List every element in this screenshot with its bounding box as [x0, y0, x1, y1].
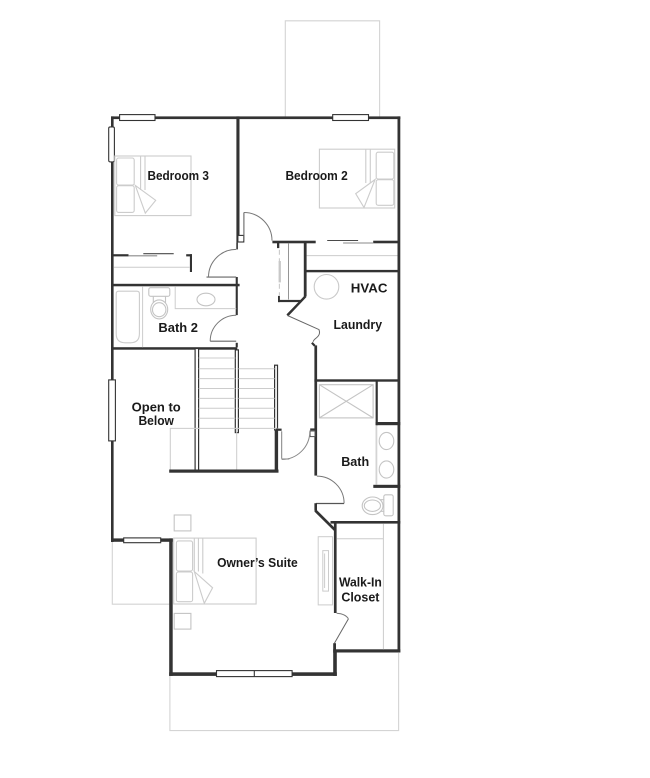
svg-text:HVAC: HVAC — [351, 280, 388, 295]
svg-text:Bath: Bath — [341, 454, 369, 469]
svg-text:Bath 2: Bath 2 — [158, 320, 198, 335]
svg-text:Bedroom 2: Bedroom 2 — [285, 168, 347, 183]
svg-text:Bedroom 3: Bedroom 3 — [147, 168, 209, 183]
svg-text:Below: Below — [138, 413, 174, 428]
svg-text:Laundry: Laundry — [334, 317, 383, 332]
svg-text:Closet: Closet — [341, 589, 380, 604]
svg-text:Walk-In: Walk-In — [339, 575, 382, 590]
svg-text:Owner’s Suite: Owner’s Suite — [217, 555, 298, 570]
